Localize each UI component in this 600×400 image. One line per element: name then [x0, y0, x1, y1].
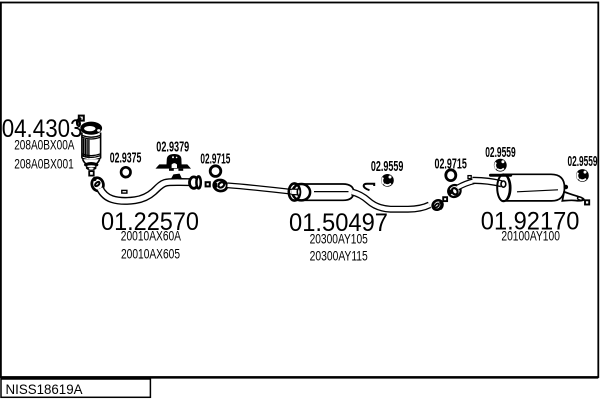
svg-text:20010AX605: 20010AX605	[121, 247, 180, 262]
svg-text:208A0BX001: 208A0BX001	[14, 157, 74, 172]
svg-text:20300AY105: 20300AY105	[310, 231, 368, 246]
svg-text:02.9559: 02.9559	[485, 144, 516, 161]
svg-text:02.9375: 02.9375	[110, 150, 142, 167]
svg-text:20100AY100: 20100AY100	[501, 229, 560, 244]
svg-text:02.9379: 02.9379	[156, 138, 189, 155]
svg-text:20010AX60A: 20010AX60A	[121, 229, 181, 244]
svg-text:02.9559: 02.9559	[371, 158, 404, 175]
svg-text:20300AY115: 20300AY115	[310, 248, 368, 263]
svg-text:NISS18619A: NISS18619A	[6, 381, 84, 397]
svg-text:208A0BX00A: 208A0BX00A	[14, 137, 74, 152]
svg-text:02.9559: 02.9559	[568, 153, 598, 170]
